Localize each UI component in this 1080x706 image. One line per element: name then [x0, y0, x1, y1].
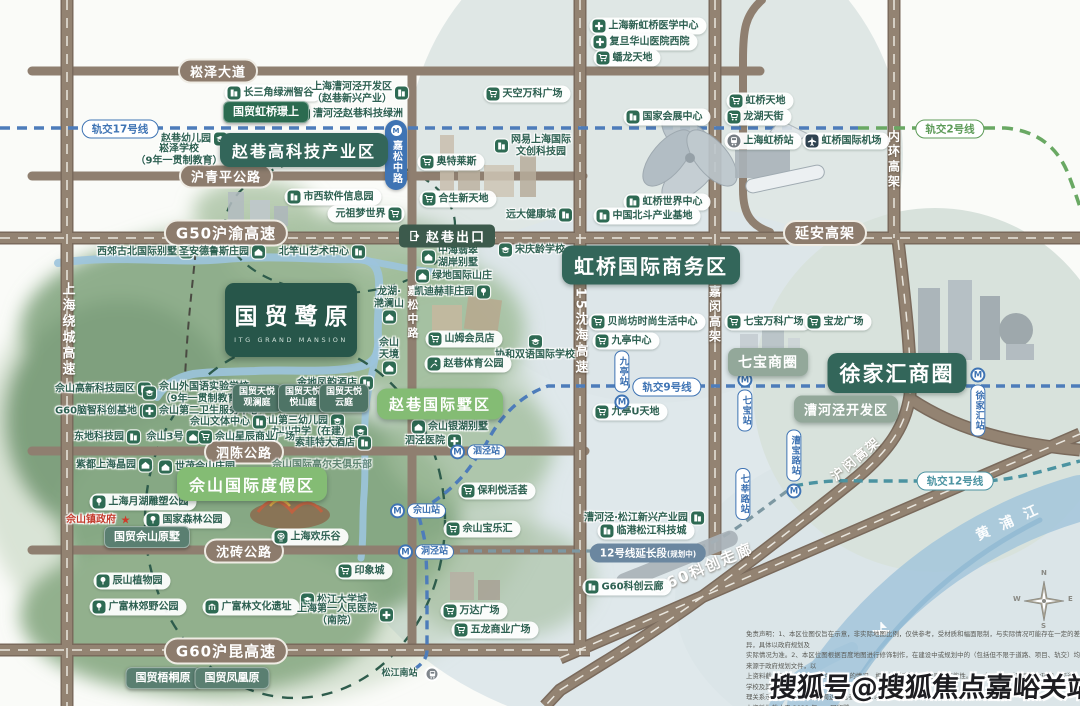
poi-text: 七宝万科广场: [744, 316, 804, 328]
tree-icon: [477, 286, 490, 299]
building-icon: [352, 246, 365, 259]
poi-text: 虹桥国际机场: [822, 135, 882, 147]
poi-text: 元祖梦世界: [336, 208, 386, 220]
poi-label: 佘山高新科技园区: [55, 383, 151, 396]
poi-label: 长三角绿洲智谷: [225, 85, 322, 102]
cart-icon: [595, 406, 608, 419]
road-label: 沪青平公路: [179, 164, 273, 189]
poi-text: G60脑智科创基地: [55, 405, 137, 417]
cart-icon: [462, 485, 475, 498]
poi-text: 上海第一人民医院（南院）: [297, 604, 377, 627]
project-logo: 国贸鹭原 ITG GRAND MANSION: [225, 283, 357, 357]
building-icon: [127, 431, 140, 444]
poi-label: 贝尚坊时尚生活中心: [589, 314, 706, 331]
poi-text: 长三角绿洲智谷: [244, 87, 314, 99]
poi-text: 虹桥天地: [746, 95, 786, 107]
building-icon: [601, 525, 614, 538]
area-banner: 漕河泾开发区: [794, 396, 898, 423]
metro-station-icon: M: [390, 124, 403, 137]
poi-text: 保利悦活荟: [478, 485, 528, 497]
plane-icon: [806, 135, 819, 148]
poi-text: 圣安德鲁斯庄园: [179, 246, 249, 258]
road-label: G60沪昆高速: [164, 638, 288, 665]
poi-text: 广富林郊野公园: [109, 601, 179, 613]
poi-label: 圣安德鲁斯庄园: [179, 246, 265, 259]
poi-label: 奥特莱斯: [418, 154, 485, 171]
poi-label: 上海漕河泾开发区（赵巷新兴产业）: [312, 82, 408, 105]
road-label: 嘉闵高架: [707, 285, 724, 345]
building-icon: [288, 191, 301, 204]
metro-station: 漕宝路站M: [786, 430, 801, 499]
metro-station-icon: M: [450, 445, 465, 460]
relocation-map: 国贸鹭原 ITG GRAND MANSION 赵巷出口 M 嘉松中路 黄浦江 免…: [0, 0, 1080, 706]
poi-label: 虹桥天地: [727, 93, 794, 110]
poi-text: 龙湖·滟澜山: [374, 287, 404, 310]
cart-icon: [730, 95, 743, 108]
metro-station: M洞泾站: [398, 544, 454, 559]
poi-text: 上海月湖雕塑公园: [109, 496, 189, 508]
school-icon: [499, 244, 512, 257]
station-label: 嘉松中路: [389, 140, 404, 184]
poi-text: 东地科技园: [74, 431, 124, 443]
itg-project-button: 国贸虹桥璟上: [223, 101, 309, 123]
compass-icon: [1022, 579, 1066, 623]
poi-label: 漕河泾赵巷科技绿洲: [297, 108, 403, 121]
ferris-icon: [275, 531, 288, 544]
poi-text: 索菲特大酒店: [295, 437, 355, 449]
tree-icon: [147, 514, 160, 527]
poi-label: 天空万科广场: [484, 86, 571, 103]
cart-icon: [487, 88, 500, 101]
compass-west-label: W: [1013, 595, 1021, 603]
poi-text: 中海翡翠湖岸别墅: [438, 246, 478, 269]
exit-door-icon: [408, 230, 421, 243]
poi-text: 中国北斗产业基地: [613, 210, 693, 222]
tree-icon: [97, 575, 110, 588]
metro-line-label: 轨交2号线: [915, 120, 984, 139]
building-icon: [585, 581, 598, 594]
itg-project-button: 国贸天悦观澜庭: [232, 384, 282, 413]
building-icon: [495, 140, 508, 153]
poi-label: 辰山植物园: [94, 573, 171, 590]
school-icon: [529, 335, 542, 348]
poi-label: G60脑智科创基地: [55, 405, 153, 418]
cart-icon: [421, 156, 434, 169]
poi-label: 上海第一人民医院（南院）: [297, 604, 393, 627]
poi-label: 九亭中心: [593, 333, 660, 350]
poi-label: 佘山3号: [147, 431, 200, 444]
metro-line-label: 轨交12号线: [917, 472, 994, 491]
highway-exit-badge: 赵巷出口: [399, 225, 495, 248]
compass-rose: N E S W: [1022, 579, 1066, 627]
cart-icon: [592, 316, 605, 329]
poi-text: 北竿山艺术中心: [279, 246, 349, 258]
station-label: 漕宝路站: [786, 430, 801, 482]
poi-label: 复旦华山医院西院: [591, 34, 698, 51]
poi-text: 绿地国际山庄: [432, 270, 492, 282]
poi-text: 宝龙广场: [824, 316, 864, 328]
compass-east-label: E: [1068, 595, 1073, 603]
house-icon: [412, 421, 425, 434]
poi-text: G60科创云廊: [601, 581, 663, 593]
poi-text: 佘山星辰商业广场: [215, 431, 295, 443]
poi-text: 凯迪赫菲庄园: [414, 286, 474, 298]
poi-label: 宝龙广场: [805, 314, 872, 331]
poi-label: 广富林文化遗址: [203, 599, 300, 616]
poi-label: 元祖梦世界: [328, 206, 405, 223]
house-icon: [186, 431, 199, 444]
poi-label: 远大健康城: [506, 209, 572, 222]
metro-station-icon: M: [390, 504, 405, 519]
poi-label: 绿地国际山庄: [416, 270, 492, 283]
highway-exit-label: 赵巷出口: [426, 227, 486, 246]
itg-project-button: 国贸天悦云庭: [319, 384, 369, 413]
area-banner: 七宝商圈: [728, 348, 808, 376]
station-label: 徐家汇站: [970, 385, 985, 437]
itg-project-button: 国贸凤凰原: [195, 667, 270, 689]
metro-line-label: 轨交17号线: [82, 120, 159, 139]
cart-icon: [389, 208, 402, 221]
cart-icon: [429, 333, 442, 346]
train-icon: [425, 667, 440, 682]
poi-label: 蟠龙天地: [594, 50, 661, 67]
house-icon: [416, 270, 429, 283]
poi-label: 九亭U天地: [592, 404, 667, 421]
cart-icon: [423, 193, 436, 206]
cart-icon: [808, 316, 821, 329]
poi-label: 中海翡翠湖岸别墅: [422, 246, 478, 269]
itg-project-button: 国贸梧桐原: [126, 667, 201, 689]
cart-icon: [447, 523, 460, 536]
cart-icon: [455, 624, 468, 637]
poi-text: 佘山银湖别墅: [428, 421, 488, 433]
poi-text: 佘山宝乐汇: [463, 523, 513, 535]
poi-label: 七宝万科广场: [725, 314, 812, 331]
project-logo-title: 国贸鹭原: [228, 297, 355, 331]
station-jiasong-middle-road: M 嘉松中路: [385, 120, 407, 190]
hospital-icon: [143, 405, 156, 418]
metro-line-label-sub: (规划中): [667, 550, 696, 559]
poi-label: 佘山镇政府★: [66, 514, 132, 527]
station-label: 七莘路站: [735, 468, 750, 520]
house-icon: [252, 246, 265, 259]
poi-label: 山姆会员店: [426, 331, 503, 348]
building-icon: [691, 512, 704, 525]
metro-station: 七莘路站: [735, 468, 750, 520]
rail-icon: [728, 135, 741, 148]
cart-icon: [728, 111, 741, 124]
poi-label: 国家会展中心: [624, 109, 711, 126]
area-banner: 虹桥国际商务区: [562, 246, 740, 285]
poi-label: 佘山宝乐汇: [444, 521, 521, 538]
poi-label: 万达广场: [441, 603, 508, 620]
poi-text: 佘山高新科技园区: [55, 383, 135, 395]
poi-text: 崧泽学校（9年一贯制教育）: [136, 144, 223, 167]
area-banner: 赵巷高科技产业区: [220, 133, 388, 167]
station-label: 七宝站: [737, 390, 752, 432]
poi-label: 宋庆龄学校: [499, 244, 565, 257]
poi-text: 佘山镇政府: [66, 514, 116, 526]
poi-text: 宋庆龄学校: [515, 244, 565, 256]
cart-icon: [199, 431, 212, 444]
poi-label: 赵巷体育公园: [425, 356, 512, 373]
metro-station: M佘山站: [390, 503, 446, 518]
poi-label: 临港松江科技城: [598, 523, 695, 540]
cart-icon: [596, 335, 609, 348]
poi-text: 佘山文体中心: [190, 416, 250, 428]
road-label: 上海绕城高速: [58, 282, 77, 378]
poi-text: 奥特莱斯: [437, 156, 477, 168]
poi-label: 上海新虹桥医学中心: [590, 18, 707, 35]
poi-label: 东地科技园: [74, 431, 140, 444]
poi-label: 市西软件信息园: [285, 189, 382, 206]
poi-label: 上海欢乐谷: [272, 529, 349, 546]
poi-text: 贝尚坊时尚生活中心: [608, 316, 698, 328]
station-label: 泗泾站: [467, 444, 506, 459]
metro-station-icon: M: [615, 395, 630, 410]
poi-text: 五龙商业广场: [471, 624, 531, 636]
building-icon: [395, 87, 408, 100]
poi-text: 紫都上海晶园: [76, 459, 136, 471]
metro-station-icon: M: [787, 484, 802, 499]
poi-label: 凯迪赫菲庄园: [414, 286, 490, 299]
metro-station: M徐家汇站: [970, 368, 985, 437]
poi-text: 国家森林公园: [163, 514, 223, 526]
station-label: 松江南站: [376, 667, 422, 680]
station-label: 九亭站: [614, 351, 629, 393]
metro-line-label: 12号线延长段(规划中): [590, 544, 706, 563]
sport-icon: [428, 358, 441, 371]
poi-text: 上海新虹桥医学中心: [609, 20, 699, 32]
poi-text: 佘山天境: [379, 338, 399, 361]
house-icon: [422, 251, 435, 264]
metro-station: 九亭站M: [614, 351, 629, 410]
poi-text: 合生新天地: [439, 193, 489, 205]
poi-text: 西郊古北国际别墅: [97, 246, 177, 258]
road-label: 沈砖公路: [204, 539, 284, 564]
poi-text: 临港松江科技城: [617, 525, 687, 537]
building-icon: [358, 437, 371, 450]
poi-label: 印象城: [336, 563, 393, 580]
road-label: 崧泽大道: [178, 59, 258, 84]
hospital-icon: [594, 36, 607, 49]
poi-label: 龙湖天街: [725, 109, 792, 126]
poi-label: 五龙商业广场: [452, 622, 539, 639]
metro-station-icon: M: [398, 545, 413, 560]
house-icon: [159, 461, 172, 474]
poi-text: 上海欢乐谷: [291, 531, 341, 543]
poi-label: 上海虹桥站: [725, 133, 802, 150]
area-banner: 赵巷国际墅区: [377, 389, 503, 420]
poi-text: 印象城: [355, 565, 385, 577]
house-icon: [139, 459, 152, 472]
building-icon: [597, 210, 610, 223]
poi-text: 漕河泾赵巷科技绿洲: [313, 108, 403, 120]
poi-label: 中国北斗产业基地: [594, 208, 701, 225]
poi-label: 索菲特大酒店: [295, 437, 371, 450]
disclaimer-line: 免责声明：1、本区位图仅旨在示意，非实际地图比例，仅供参考，受材质和幅面限制，与…: [746, 629, 1080, 650]
poi-label: 保利悦活荟: [459, 483, 536, 500]
building-icon: [253, 416, 266, 429]
rail-station: 松江南站: [376, 667, 439, 682]
cart-icon: [728, 316, 741, 329]
building-icon: [627, 111, 640, 124]
poi-label: 网易上海国际文创科技园: [495, 135, 571, 158]
cart-icon: [597, 52, 610, 65]
poi-label: 北竿山艺术中心: [279, 246, 365, 259]
poi-text: 赵巷体育公园: [444, 358, 504, 370]
poi-text: 国家会展中心: [643, 111, 703, 123]
poi-label: 佘山星辰商业广场: [199, 431, 295, 444]
metro-station-icon: M: [971, 368, 986, 383]
poi-text: 泗泾医院: [405, 435, 445, 447]
poi-text: 佘山3号: [147, 431, 184, 443]
poi-label: 佘山文体中心: [190, 416, 266, 429]
area-banner: 徐家汇商圈: [828, 353, 967, 393]
poi-text: 万达广场: [460, 605, 500, 617]
poi-label: G60科创云廊: [582, 579, 671, 596]
poi-text: 广富林文化遗址: [222, 601, 292, 613]
project-logo-subtitle: ITG GRAND MANSION: [234, 336, 348, 344]
poi-label: 龙湖·滟澜山: [374, 287, 404, 324]
poi-label: 广富林郊野公园: [90, 599, 187, 616]
poi-text: 蟠龙天地: [613, 52, 653, 64]
metro-station: M泗泾站: [450, 444, 506, 459]
poi-text: 上海漕河泾开发区（赵巷新兴产业）: [312, 82, 392, 105]
cart-icon: [339, 565, 352, 578]
station-label: 洞泾站: [415, 544, 454, 559]
poi-label: 虹桥国际机场: [803, 133, 890, 150]
landmark-icon: [206, 601, 219, 614]
itg-project-button: 国贸佘山原墅: [104, 526, 190, 548]
hospital-icon: [593, 20, 606, 33]
poi-text: 复旦华山医院西院: [610, 36, 690, 48]
poi-text: 网易上海国际文创科技园: [511, 135, 571, 158]
poi-label: 紫都上海晶园: [76, 459, 152, 472]
poi-label: 合生新天地: [420, 191, 497, 208]
poi-text: 天空万科广场: [503, 88, 563, 100]
building-icon: [228, 87, 241, 100]
poi-label: 佘山天境: [379, 338, 399, 375]
poi-text: 虹桥世界中心: [643, 196, 703, 208]
tree-icon: [93, 496, 106, 509]
cart-icon: [444, 605, 457, 618]
compass-north-label: N: [1041, 569, 1047, 577]
road-label: G50沪渝高速: [164, 220, 288, 247]
poi-text: 龙湖天街: [744, 111, 784, 123]
tree-icon: [93, 601, 106, 614]
metro-station: M七宝站: [737, 373, 752, 432]
poi-text: 市西软件信息园: [304, 191, 374, 203]
watermark: 搜狐号@搜狐焦点嘉峪关站: [769, 666, 1080, 705]
poi-text: 辰山植物园: [113, 575, 163, 587]
area-banner: 佘山国际度假区: [177, 467, 327, 501]
road-label: 延安高架: [783, 220, 867, 246]
star-icon: ★: [119, 514, 132, 527]
school-icon: [143, 387, 156, 400]
station-label: 佘山站: [407, 503, 446, 518]
poi-text: 山姆会员店: [445, 333, 495, 345]
house-icon: [383, 311, 396, 324]
poi-text: 上海虹桥站: [744, 135, 794, 147]
poi-text: 九亭中心: [612, 335, 652, 347]
building-icon: [559, 209, 572, 222]
house-icon: [383, 362, 396, 375]
poi-label: 佘山银湖别墅: [412, 421, 488, 434]
compass-south-label: S: [1041, 622, 1046, 630]
metro-line-label: 轨交9号线: [632, 378, 701, 397]
hospital-icon: [380, 609, 393, 622]
poi-text: 远大健康城: [506, 209, 556, 221]
